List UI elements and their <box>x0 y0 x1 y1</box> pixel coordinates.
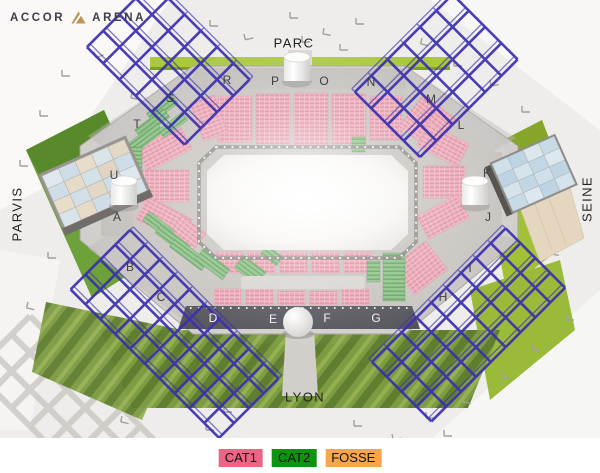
section-label-p: P <box>271 74 279 88</box>
section-label-b: B <box>126 260 134 274</box>
legend-chip-cat2: CAT2 <box>272 449 316 467</box>
brand-logo: ACCOR ARENA <box>10 11 146 24</box>
section-label-o: O <box>319 74 328 88</box>
section-label-r: R <box>223 73 232 87</box>
legend: CAT1 CAT2 FOSSE <box>219 449 382 467</box>
section-label-s: S <box>166 91 174 105</box>
section-label-h: H <box>439 290 448 304</box>
section-label-j: J <box>485 210 491 224</box>
section-label-k: K <box>483 166 491 180</box>
legend-chip-fosse: FOSSE <box>325 449 381 467</box>
section-label-u: U <box>110 168 119 182</box>
direction-label-parvis: PARVIS <box>10 187 25 242</box>
legend-chip-cat1: CAT1 <box>219 449 263 467</box>
direction-label-parc: PARC <box>274 36 315 51</box>
section-label-a: A <box>113 210 121 224</box>
section-label-e: E <box>269 312 277 326</box>
section-label-l: L <box>458 118 465 132</box>
section-label-d: D <box>209 311 218 325</box>
tower-east <box>460 176 490 212</box>
direction-label-seine: SEINE <box>580 176 595 222</box>
brand-word-accor: ACCOR <box>10 12 65 24</box>
tower-north <box>282 52 312 88</box>
accor-arena-logo-icon <box>71 11 86 24</box>
section-label-g: G <box>371 311 380 325</box>
section-label-i: I <box>468 261 471 275</box>
section-label-f: F <box>323 311 330 325</box>
seating-map-page: ACCOR ARENA PARC PARVIS SEINE LYON R P O… <box>0 0 600 473</box>
brand-word-arena: ARENA <box>92 12 146 24</box>
direction-label-lyon: LYON <box>285 390 325 405</box>
section-label-c: C <box>157 290 166 304</box>
section-label-n: N <box>367 75 376 89</box>
section-label-t: T <box>133 117 140 131</box>
section-label-m: M <box>426 92 436 106</box>
